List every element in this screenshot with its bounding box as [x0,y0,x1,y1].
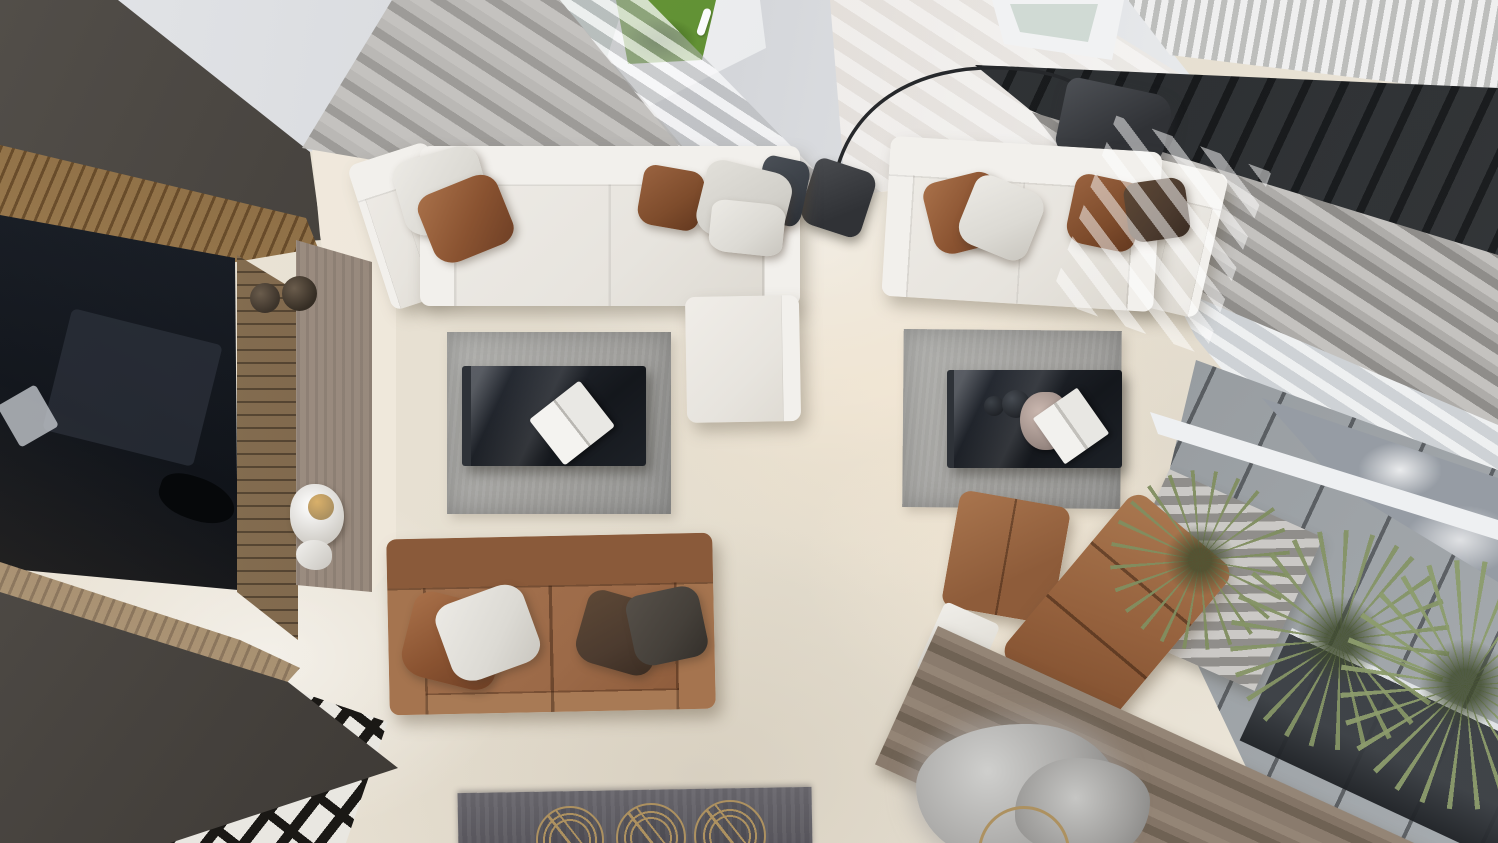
pillow-brown [635,163,706,233]
tv-reflection-lamp [153,467,240,531]
tv-reflection-sofa [42,308,223,467]
gold-ball-decor [308,494,334,520]
pinecone-decor [282,276,317,311]
teapot-decor [296,540,332,570]
dark-vase [984,396,1004,416]
sectional-sofa-chaise [685,295,801,423]
living-room-render [0,0,1498,843]
pillow-gray-dark [623,583,710,669]
pillow-white [707,198,786,257]
pinecone-decor [250,283,280,313]
